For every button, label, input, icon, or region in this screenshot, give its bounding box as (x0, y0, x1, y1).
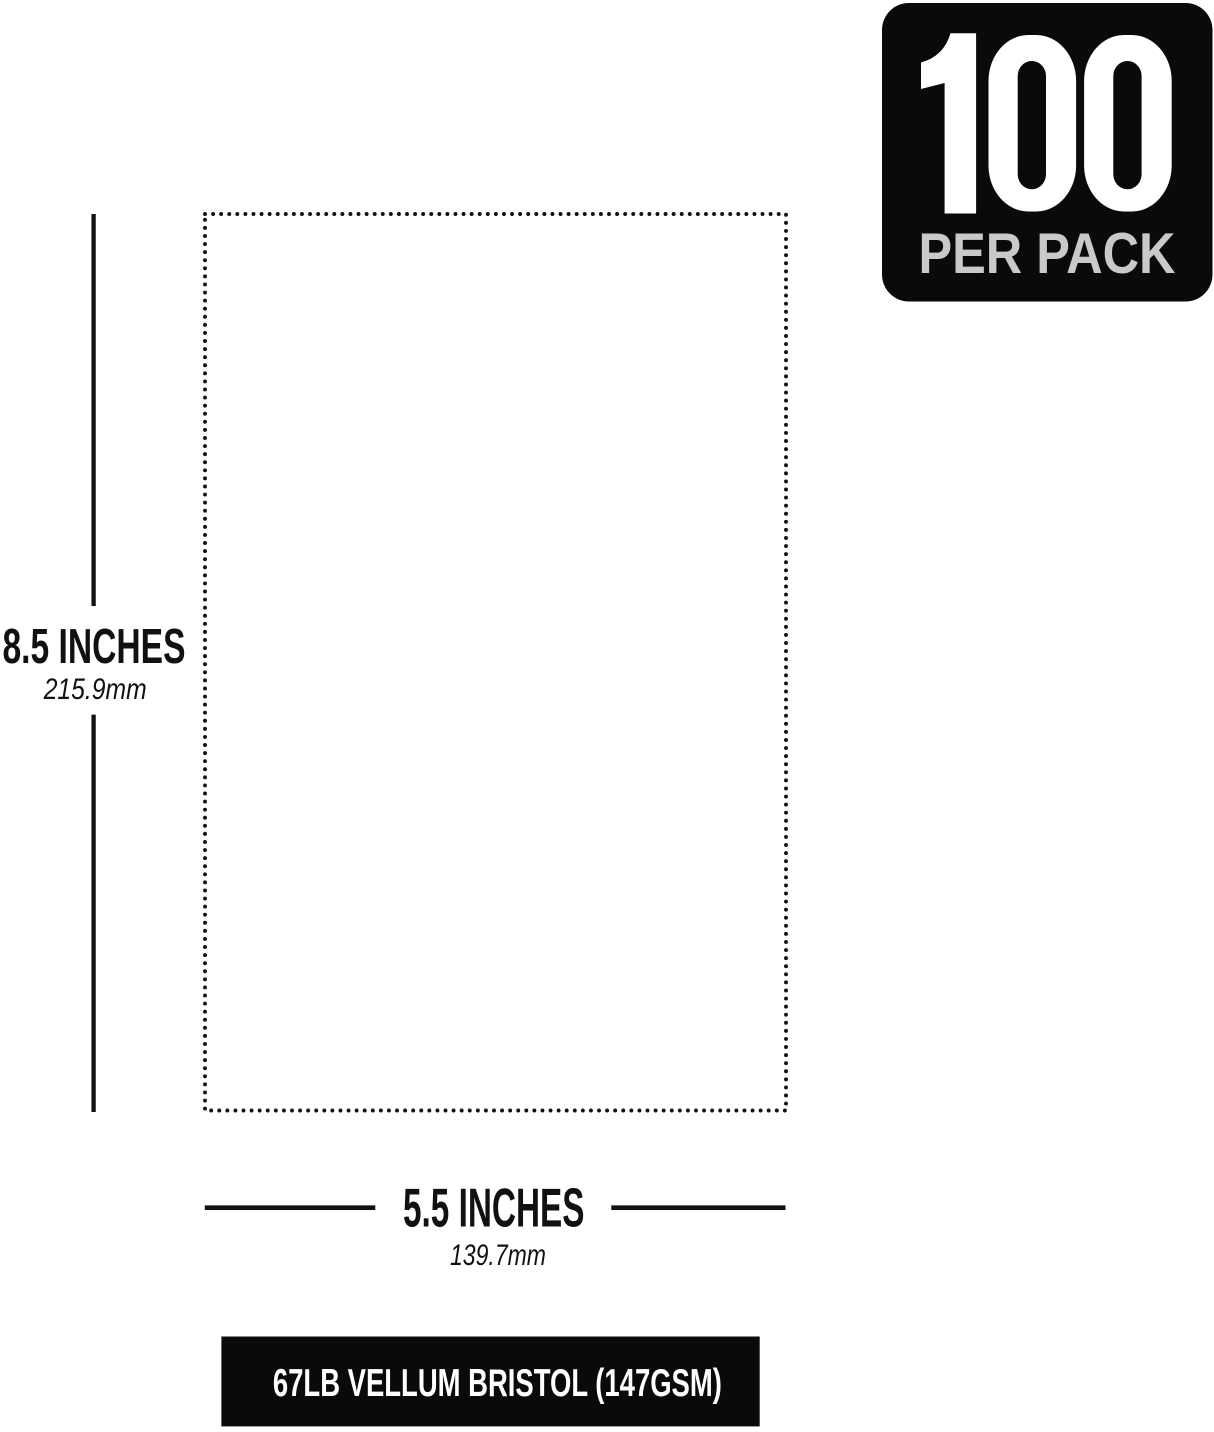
svg-text:PER PACK: PER PACK (919, 222, 1176, 286)
svg-text:5.5 INCHES: 5.5 INCHES (403, 1178, 585, 1239)
svg-text:8.5 INCHES: 8.5 INCHES (3, 619, 186, 674)
svg-text:215.9mm: 215.9mm (43, 673, 147, 706)
svg-text:139.7mm: 139.7mm (450, 1239, 546, 1272)
svg-text:67LB VELLUM BRISTOL (147GSM): 67LB VELLUM BRISTOL (147GSM) (273, 1362, 722, 1405)
